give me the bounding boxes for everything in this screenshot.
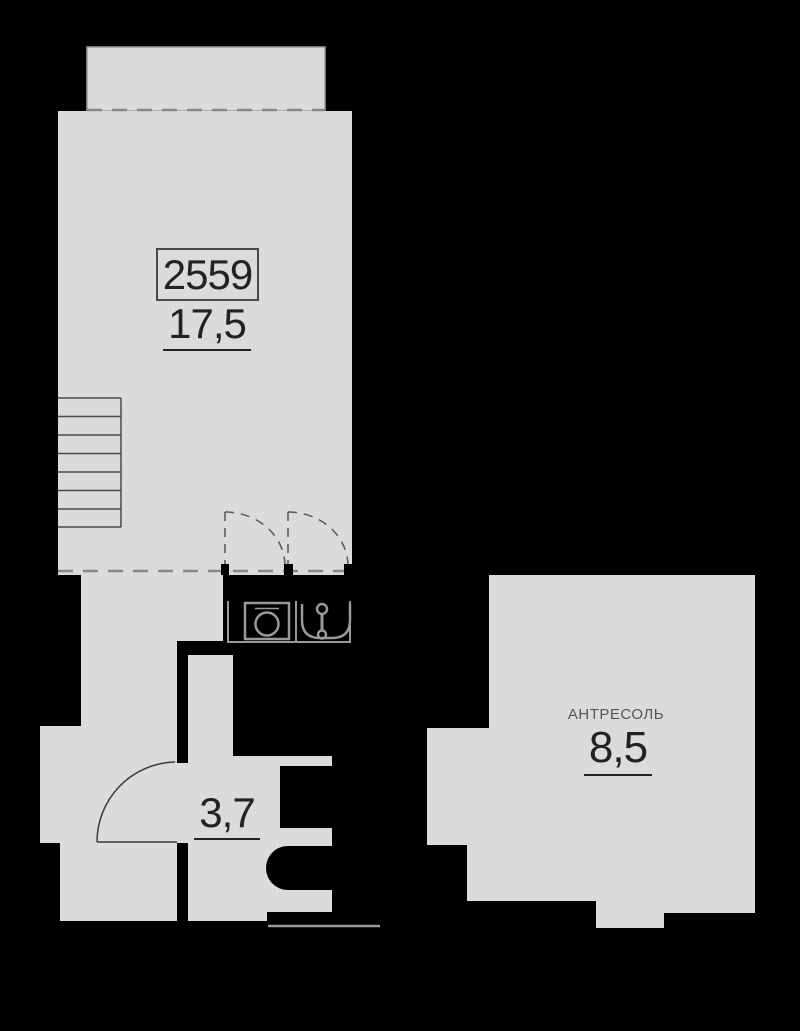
balcony-floor — [87, 47, 325, 111]
door-post — [221, 564, 229, 575]
door-post — [284, 564, 293, 575]
floor-plan: 2559 17,5 3,7 АНТРЕСОЛЬ 8,5 — [0, 0, 800, 1031]
mezzanine-area-label: 8,5 — [563, 726, 673, 776]
mezzanine-title: АНТРЕСОЛЬ — [516, 707, 716, 722]
hall-area-label: 3,7 — [172, 792, 282, 840]
door-post — [344, 564, 352, 575]
main-room-area-label: 17,5 — [152, 303, 262, 351]
wall-niche — [280, 766, 332, 828]
toilet-icon — [266, 846, 332, 890]
unit-number: 2559 — [163, 251, 252, 299]
kitchen-counter — [223, 576, 352, 645]
floor-plan-drawing — [0, 0, 800, 1031]
unit-number-box: 2559 — [156, 248, 259, 301]
